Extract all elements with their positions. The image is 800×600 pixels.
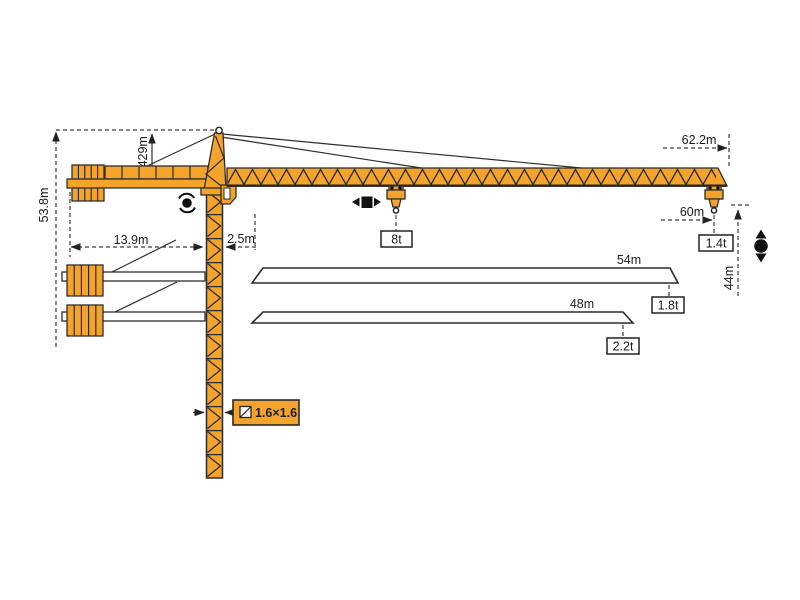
trolley-tip-block bbox=[709, 199, 719, 207]
hoisting-icon bbox=[754, 230, 768, 263]
trolley-travel-left-arrow bbox=[352, 198, 360, 207]
jib-variant-54m: 54m 1.8t bbox=[252, 253, 684, 313]
trolley-mid-body bbox=[387, 190, 405, 199]
variant-48m-bar bbox=[252, 312, 633, 323]
trolley-tip-wheel-left bbox=[708, 186, 711, 189]
counter-jib-variant-2 bbox=[62, 305, 205, 336]
trolley-travel-icon bbox=[352, 197, 381, 209]
hoisting-down-arrow bbox=[756, 254, 767, 263]
load-box-tip: 1.4t bbox=[699, 235, 733, 251]
trolley-travel-right-arrow bbox=[374, 198, 381, 207]
dim-rear-offset: 2.5m bbox=[226, 214, 256, 250]
counter-jib-variant-1 bbox=[62, 265, 205, 296]
counter-jib-beam bbox=[67, 179, 210, 188]
dim-rear-offset-label: 2.5m bbox=[227, 232, 255, 246]
jib-lattice bbox=[228, 169, 716, 186]
slewing-arc-bottom bbox=[180, 208, 195, 213]
apex-pulley bbox=[216, 127, 222, 133]
variant-48m-length-label: 48m bbox=[570, 297, 594, 311]
jib-tie-bar-outer bbox=[222, 134, 592, 169]
main-jib bbox=[227, 168, 727, 186]
variant-1-counterweight bbox=[67, 265, 103, 296]
trolley-mid-block bbox=[391, 199, 401, 207]
hook-tip bbox=[711, 208, 716, 213]
slewing-icon bbox=[179, 194, 195, 213]
hook-mid bbox=[393, 208, 398, 213]
dim-jib-length-label: 62.2m bbox=[682, 133, 717, 147]
mast-lattice bbox=[207, 190, 223, 478]
variant-54m-bar bbox=[252, 268, 678, 283]
jib-tie-bar-inner bbox=[221, 137, 447, 172]
trolley-travel-square bbox=[362, 197, 373, 209]
dim-hook-height-label: 44m bbox=[722, 266, 736, 290]
variant-54m-load-label: 1.8t bbox=[658, 299, 679, 313]
tip-load-label: 1.4t bbox=[706, 237, 727, 251]
variant-2-counterweight bbox=[67, 305, 103, 336]
trolley-mid-wheel-left bbox=[390, 186, 393, 189]
slewing-dot bbox=[182, 198, 192, 208]
hoisting-up-arrow bbox=[756, 230, 767, 239]
trolley-mid bbox=[387, 186, 405, 213]
crane-spec-sheet: 53.8m 7.429m 13.9m 2.5m 62.2m 60m 44m bbox=[0, 0, 800, 600]
trolley-tip bbox=[705, 186, 723, 213]
trolley-tip-wheel-right bbox=[716, 186, 719, 189]
cross-section-icon bbox=[240, 407, 251, 418]
trolley-tip-body bbox=[705, 190, 723, 199]
slewing-arc-top bbox=[179, 194, 194, 199]
mast-section-label: 1.6×1.6 bbox=[255, 406, 297, 420]
operator-cab bbox=[221, 185, 236, 204]
dim-hook-radius-label: 60m bbox=[680, 205, 704, 219]
dim-counter-radius-label: 13.9m bbox=[114, 233, 149, 247]
counter-jib-tie-bar bbox=[147, 134, 215, 166]
trolley-mid-wheel-right bbox=[398, 186, 401, 189]
dim-hook-radius: 60m bbox=[661, 205, 712, 220]
hoisting-dot bbox=[754, 239, 768, 253]
variant-48m-load-label: 2.2t bbox=[613, 340, 634, 354]
tower-head bbox=[204, 127, 226, 190]
variant-54m-length-label: 54m bbox=[617, 253, 641, 267]
cab-window bbox=[224, 188, 230, 199]
dim-total-height-label: 53.8m bbox=[37, 188, 51, 223]
leader-line-variant-2 bbox=[115, 282, 177, 312]
jib-variant-48m: 48m 2.2t bbox=[252, 297, 639, 354]
max-load-label: 8t bbox=[391, 233, 402, 247]
tower-crane-diagram: 53.8m 7.429m 13.9m 2.5m 62.2m 60m 44m bbox=[0, 0, 800, 600]
tower-mast bbox=[207, 190, 223, 478]
dim-jib-length: 62.2m bbox=[663, 133, 729, 166]
load-box-max: 8t bbox=[381, 231, 412, 247]
